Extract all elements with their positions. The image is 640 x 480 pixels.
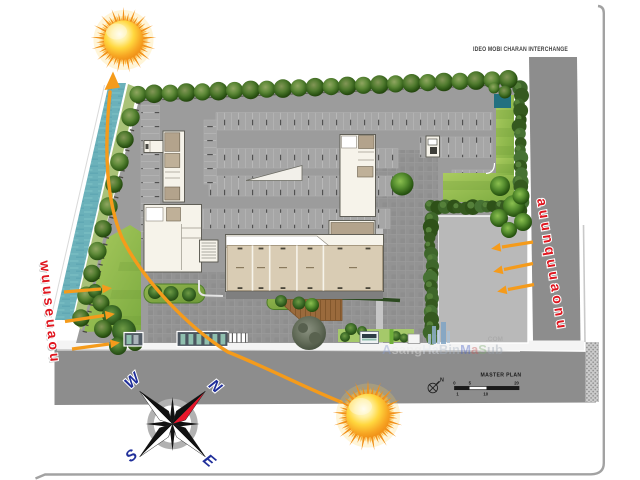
svg-text:IDEO MOBI CHARAN INTERCHANGE: IDEO MOBI CHARAN INTERCHANGE xyxy=(473,46,568,53)
svg-text:10: 10 xyxy=(483,391,488,396)
svg-text:20: 20 xyxy=(514,381,519,386)
svg-text:AsangHaBinMaSub: AsangHaBinMaSub xyxy=(382,342,503,357)
svg-text:N: N xyxy=(440,378,444,384)
svg-text:MASTER PLAN: MASTER PLAN xyxy=(481,373,522,379)
